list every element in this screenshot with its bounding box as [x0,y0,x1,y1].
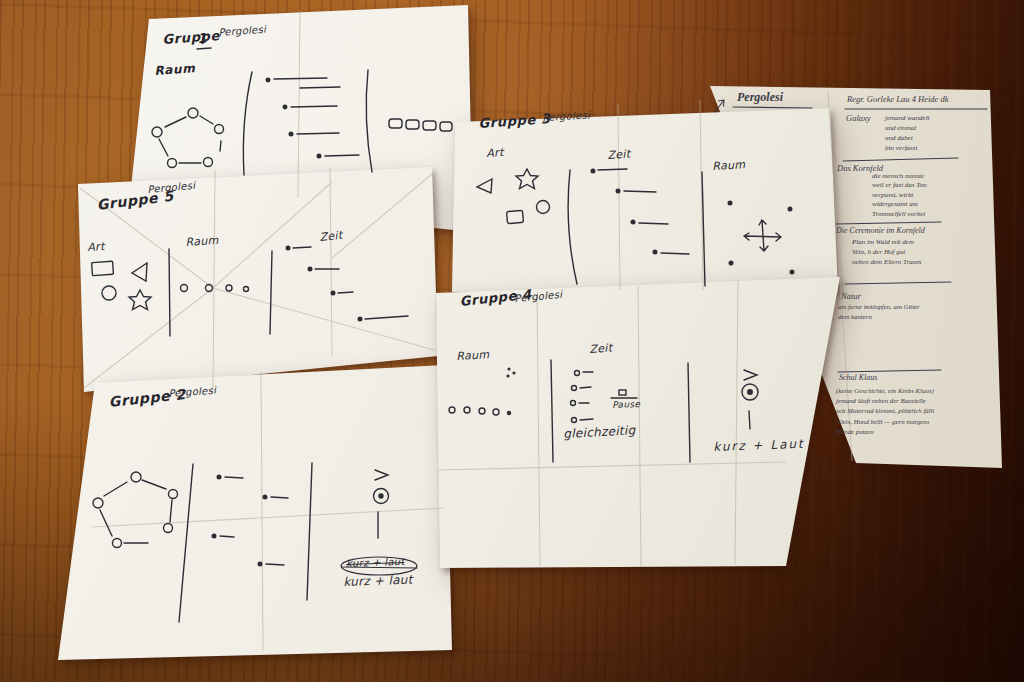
wooden-table [0,0,1024,682]
photo-scene: Gruppe 1 Pergolesi Raum Gruppe 5 Pergole… [0,0,1024,682]
